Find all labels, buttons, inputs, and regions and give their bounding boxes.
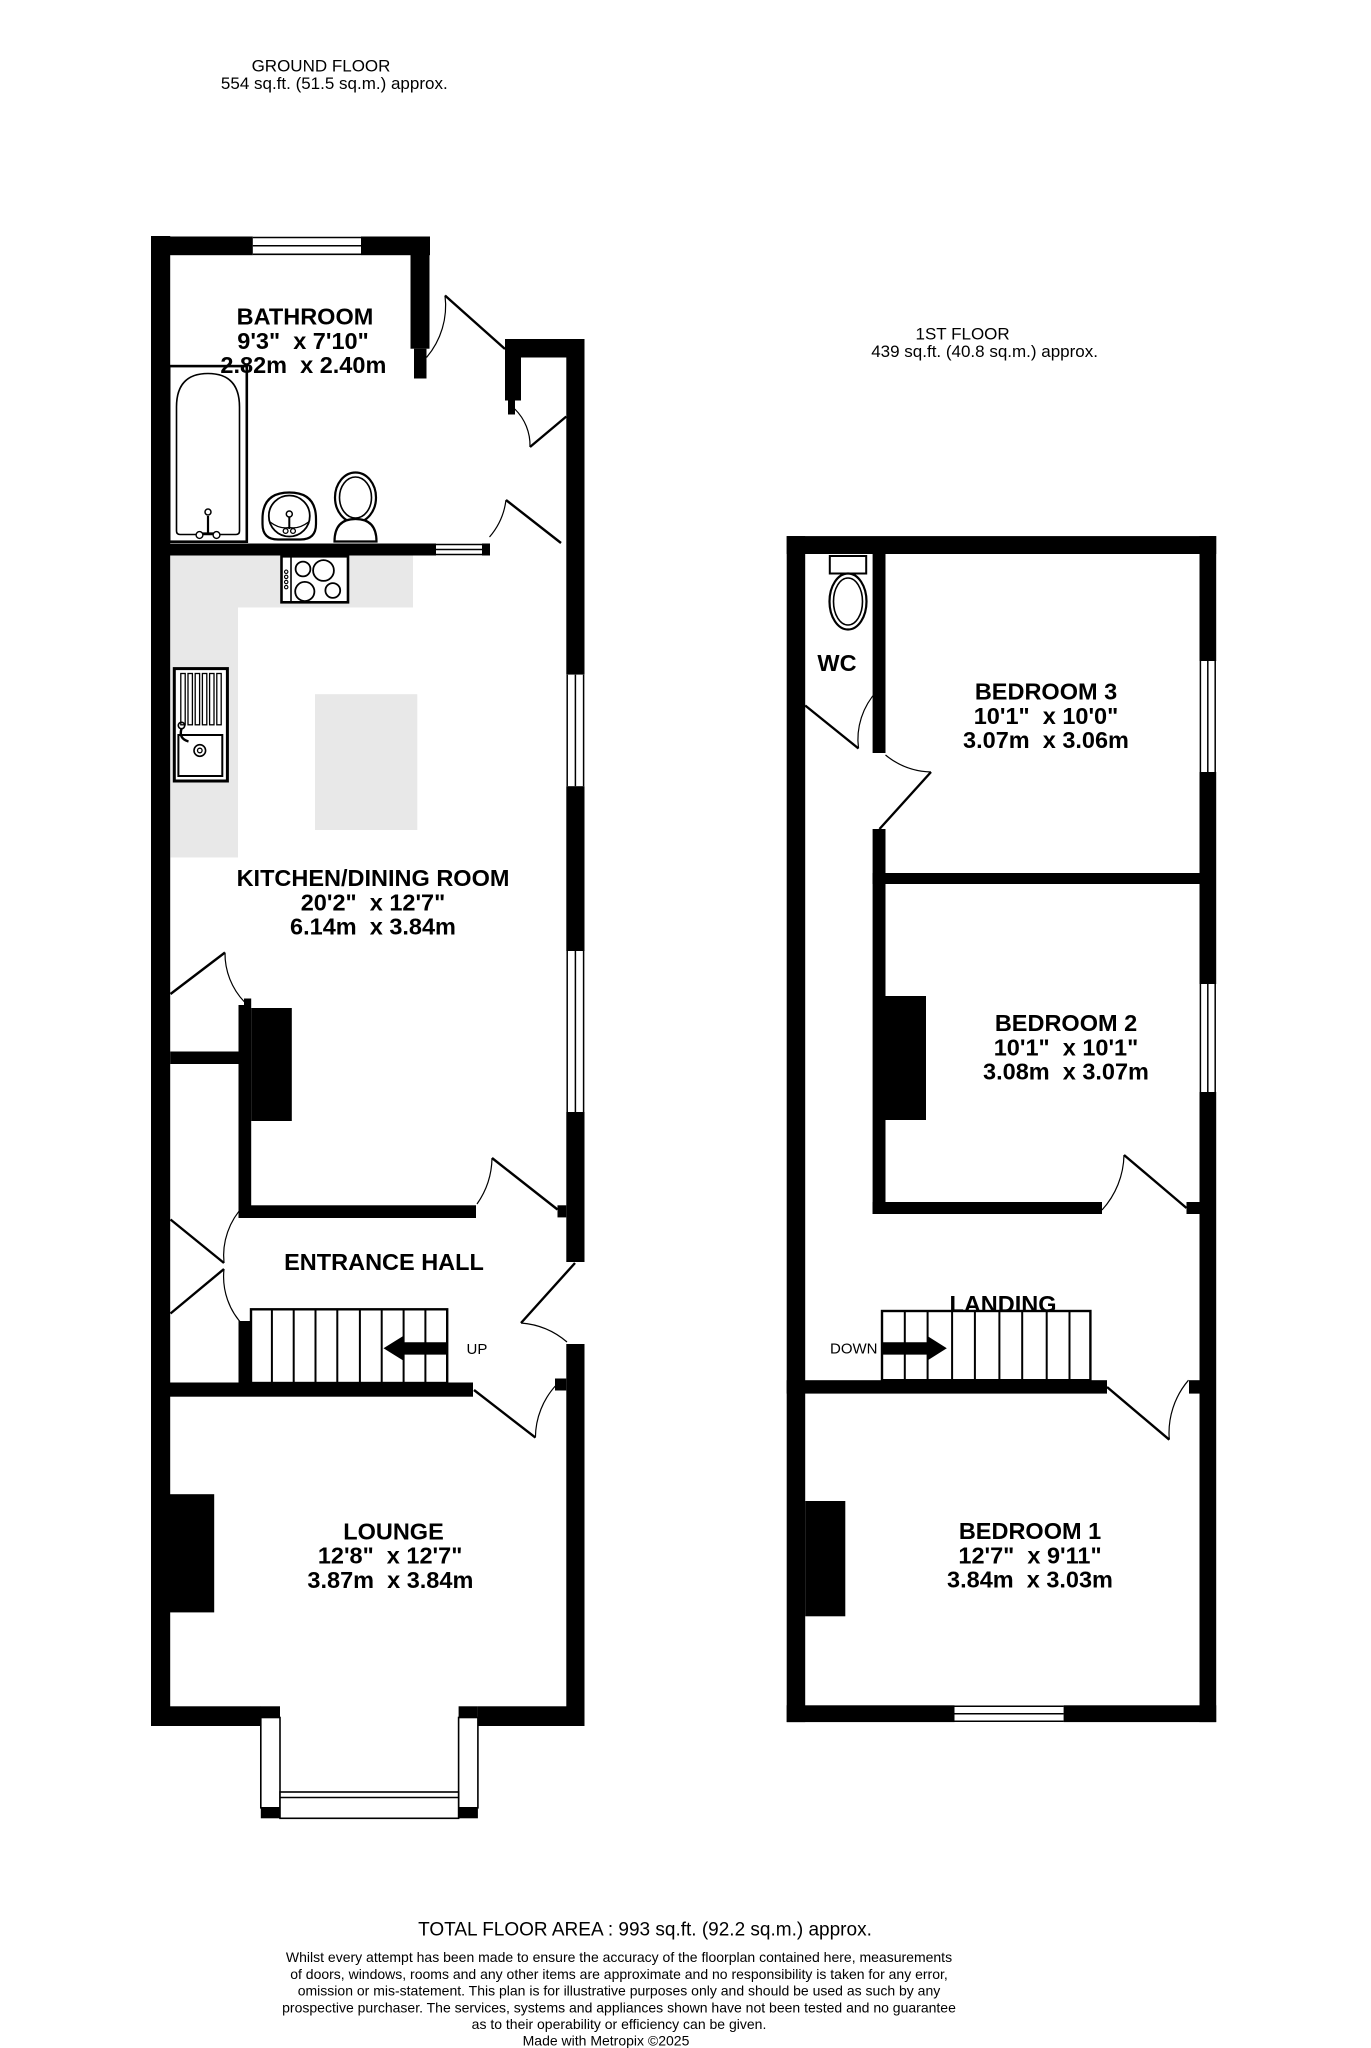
svg-text:BATHROOM: BATHROOM xyxy=(237,304,374,330)
svg-text:12'8" x 12'7": 12'8" x 12'7" xyxy=(318,1543,463,1569)
svg-text:554 sq.ft. (51.5 sq.m.) approx: 554 sq.ft. (51.5 sq.m.) approx. xyxy=(221,74,448,93)
svg-text:of doors, windows, rooms and a: of doors, windows, rooms and any other i… xyxy=(290,1966,948,1982)
svg-text:3.87m x 3.84m: 3.87m x 3.84m xyxy=(307,1567,473,1593)
svg-text:3.08m x 3.07m: 3.08m x 3.07m xyxy=(983,1059,1149,1085)
svg-text:3.84m x 3.03m: 3.84m x 3.03m xyxy=(947,1567,1113,1593)
svg-text:BEDROOM 2: BEDROOM 2 xyxy=(995,1010,1137,1036)
svg-text:TOTAL FLOOR AREA : 993 sq.ft.: TOTAL FLOOR AREA : 993 sq.ft. (92.2 sq.m… xyxy=(418,1920,872,1941)
svg-text:BEDROOM 1: BEDROOM 1 xyxy=(959,1518,1101,1544)
svg-text:Whilst every attempt has been: Whilst every attempt has been made to en… xyxy=(286,1949,952,1965)
svg-text:3.07m x 3.06m: 3.07m x 3.06m xyxy=(963,727,1129,753)
svg-text:omission or mis-statement. Thi: omission or mis-statement. This plan is … xyxy=(298,1983,941,1999)
svg-text:BEDROOM 3: BEDROOM 3 xyxy=(975,679,1117,705)
svg-text:DOWN: DOWN xyxy=(830,1341,878,1358)
svg-text:439 sq.ft. (40.8 sq.m.) approx: 439 sq.ft. (40.8 sq.m.) approx. xyxy=(871,342,1098,361)
svg-text:9'3" x 7'10": 9'3" x 7'10" xyxy=(237,328,368,354)
svg-text:WC: WC xyxy=(817,650,856,676)
svg-text:ENTRANCE HALL: ENTRANCE HALL xyxy=(284,1249,484,1275)
svg-text:KITCHEN/DINING ROOM: KITCHEN/DINING ROOM xyxy=(237,865,510,891)
svg-text:UP: UP xyxy=(467,1341,488,1358)
svg-text:20'2" x 12'7": 20'2" x 12'7" xyxy=(301,889,446,915)
svg-text:as to their operability or eff: as to their operability or efficiency ca… xyxy=(472,2016,767,2032)
svg-text:prospective purchaser. The ser: prospective purchaser. The services, sys… xyxy=(282,1999,956,2015)
svg-text:1ST FLOOR: 1ST FLOOR xyxy=(916,325,1010,344)
svg-text:10'1" x 10'1": 10'1" x 10'1" xyxy=(994,1034,1139,1060)
svg-text:GROUND FLOOR: GROUND FLOOR xyxy=(252,57,391,76)
svg-text:LOUNGE: LOUNGE xyxy=(343,1518,444,1544)
svg-text:6.14m x 3.84m: 6.14m x 3.84m xyxy=(290,914,456,940)
svg-text:10'1" x 10'0": 10'1" x 10'0" xyxy=(974,703,1119,729)
svg-text:12'7" x 9'11": 12'7" x 9'11" xyxy=(958,1542,1101,1568)
svg-text:LANDING: LANDING xyxy=(949,1291,1056,1317)
svg-text:2.82m x 2.40m: 2.82m x 2.40m xyxy=(220,352,386,378)
svg-text:Made with Metropix ©2025: Made with Metropix ©2025 xyxy=(523,2033,690,2048)
